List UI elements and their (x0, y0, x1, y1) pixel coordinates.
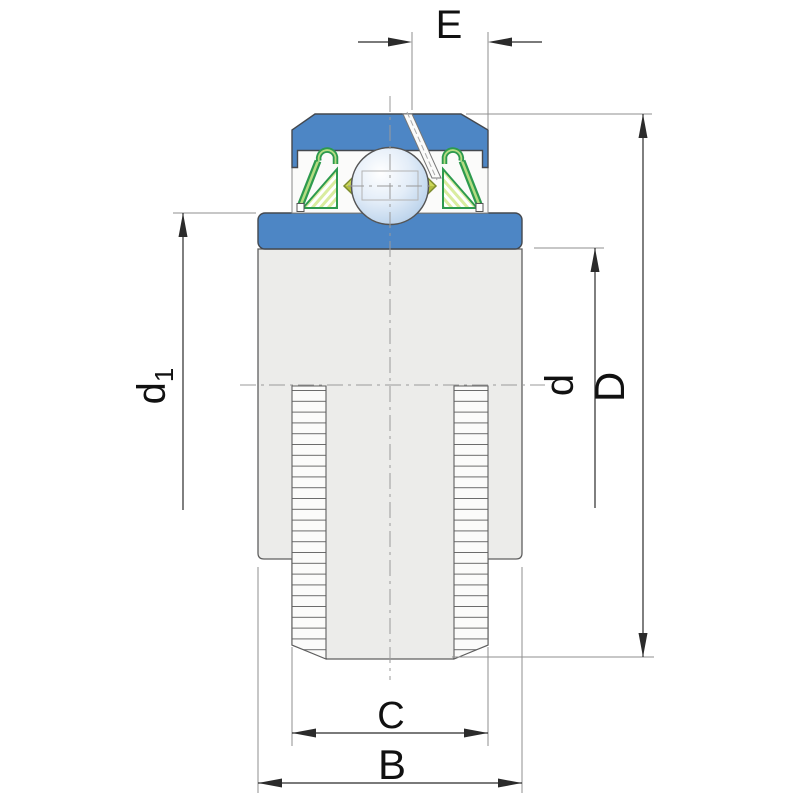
dim-label-d: d (538, 374, 582, 396)
dim-label-e: E (436, 3, 463, 47)
bearing-technical-drawing: E d1 d D C B (0, 0, 800, 800)
dim-label-C: C (377, 695, 404, 737)
dim-label-D: D (586, 372, 633, 402)
thread-strip-left (292, 386, 326, 659)
dim-label-d1: d1 (130, 368, 179, 405)
dim-label-B: B (378, 741, 406, 788)
dim-label-d1-main: d (130, 382, 174, 404)
drawing-svg: E d1 d D C B (0, 0, 800, 800)
dim-label-d1-sub: 1 (149, 368, 179, 382)
thread-strip-right (454, 386, 488, 659)
